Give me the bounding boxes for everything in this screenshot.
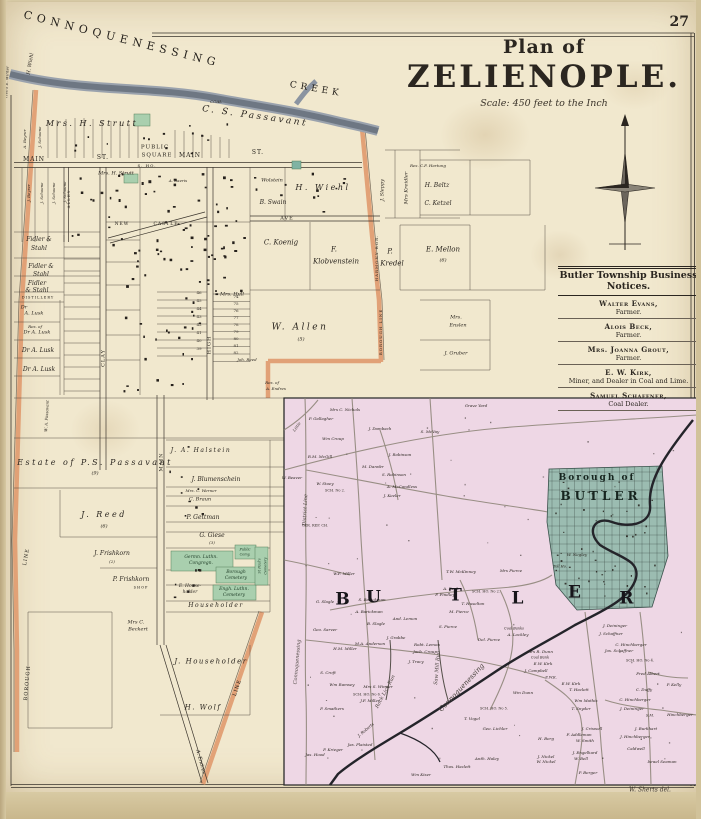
resident-label: Anth. Haley (475, 757, 499, 761)
resident-label: W. Nickel (536, 760, 555, 764)
resident-label: T. Hazlett (569, 688, 588, 692)
resident-label: Fred Albert (636, 672, 660, 676)
resident-label: A. Barickman (355, 610, 382, 614)
landowner-label: Dr A. Lusk (23, 367, 55, 373)
resident-label: GER. REF. CH. (302, 524, 328, 528)
resident-label: Wm Dunn (513, 691, 533, 695)
resident-label: M. Pierce (449, 610, 469, 614)
lot-number: 39 (196, 347, 201, 351)
resident-label: R.M. McGill (308, 455, 332, 459)
landowner-label: A. Beyrer (23, 129, 27, 148)
landowner-label: Mrs. H. Strutt (98, 172, 134, 177)
resident-label: Israel Seaman (647, 760, 676, 764)
resident-label: C. Hinchberger (619, 698, 650, 702)
landowner-label: J. A. Halstein (171, 448, 231, 454)
resident-label: SCH. No 2. (325, 489, 345, 493)
landowner-label: A. Endres (266, 387, 286, 391)
resident-label: J. Burkhart (635, 727, 657, 731)
resident-label: E.W.K. (545, 676, 557, 680)
landowner-label: Enslen (449, 324, 466, 329)
landowner-label: Cemy. (240, 553, 251, 557)
landowner-label: C. Braun (189, 498, 211, 503)
resident-label: Hinchberger (667, 713, 693, 717)
street-label: ST. (252, 150, 264, 156)
lot-number: 74 (233, 295, 238, 299)
resident-label: J. Tracy (408, 660, 423, 664)
page-margin-right (696, 0, 701, 819)
resident-label: M.A. Anderson (355, 642, 385, 646)
resident-label: Jos. Schaffner (605, 649, 633, 653)
resident-label: S. Croft (320, 671, 336, 675)
page-number: 27 (670, 14, 689, 30)
resident-label: And. Lemon (393, 617, 417, 621)
resident-label: P. Berger (579, 771, 597, 775)
landowner-label: J. Sleppy (381, 179, 386, 201)
landowner-label: Wolstein (261, 179, 283, 184)
resident-label: S. Pierce (439, 625, 457, 629)
resident-label: T. Huselton (462, 602, 485, 606)
landowner-label: C. Ketzel (424, 201, 451, 207)
township-letter: U (366, 590, 382, 607)
township-letter: R (619, 591, 634, 608)
business-role: Farmer. (558, 308, 699, 316)
resident-label: SCH. HO. No 2. (472, 590, 500, 594)
landowner-label: Estate of P.S. Passavant (17, 459, 173, 467)
lot-number: 82 (233, 351, 238, 355)
landowner-label: E. House- (179, 585, 201, 590)
street-label: ST. (97, 155, 109, 161)
resident-label: Coal Banks (504, 627, 524, 631)
landowner-label: Fidler & (26, 237, 52, 243)
landowner-label: J. Schoene (63, 181, 67, 202)
street-label: SQUARE (142, 153, 173, 159)
landowner-label: H. Wiehl (295, 184, 350, 192)
resident-label: E.W. Kirk (534, 662, 553, 666)
business-name: Mrs. Joanna Grout, (558, 345, 699, 354)
landowner-label: Cemetery (225, 577, 247, 582)
resident-label: H.M. Miller (333, 647, 357, 651)
landowner-label: (5) (297, 338, 304, 343)
landowner-label: Res. of (28, 325, 42, 329)
resident-label: Jas. Plaisted (348, 743, 373, 747)
resident-label: W. Smith (576, 739, 594, 743)
landowner-label: (3) (209, 541, 215, 545)
street-label: S. HO. (138, 164, 157, 168)
resident-label: Robt. Lemon (414, 643, 440, 647)
landowner-label: (2) (109, 560, 115, 564)
resident-label: W. Beaver (282, 476, 302, 480)
resident-label: Mrs R. Dunn (527, 650, 553, 654)
landowner-label: Mrs. C. Werner (186, 489, 217, 493)
resident-label: S.M. (646, 714, 654, 718)
township-letter: E (568, 585, 582, 602)
resident-label: Mrs Pierce (500, 569, 522, 573)
resident-label: Grave Yard (465, 404, 488, 408)
resident-label: W. Negley (567, 553, 587, 557)
street-label: AVE (280, 217, 294, 222)
landowner-label: Kredel (380, 261, 404, 268)
business-role: Farmer. (558, 354, 699, 362)
street-label: ALLEY (67, 190, 71, 209)
resident-label: J. Grabbe (387, 636, 406, 640)
street-label: CASTLE (153, 223, 178, 228)
township-letter: B (335, 592, 350, 609)
resident-label: Caldwell (627, 747, 645, 751)
resident-label: Wm Kiser (411, 773, 431, 777)
landowner-label: (6) (100, 525, 107, 530)
resident-label: P. Smathers (320, 707, 344, 711)
resident-label: J. Campbell (524, 669, 547, 673)
resident-label: J. Dambach (369, 427, 392, 431)
landowner-label: Public (239, 548, 250, 552)
landowner-label: P. Gettman (187, 515, 220, 521)
business-name: Samuel Schaffner, (558, 391, 699, 400)
landowner-label: P. (387, 249, 393, 256)
resident-label: P. Gallagher (309, 417, 333, 421)
street-label: PUBLIC (141, 145, 169, 151)
lot-number: 46 (196, 291, 201, 295)
resident-label: T.W. McKinney (446, 570, 476, 574)
lot-number: 41 (196, 331, 201, 335)
resident-label: A. McCandless (387, 485, 417, 489)
page-gutter-left (0, 0, 6, 819)
resident-label: C. Hinchberger (615, 643, 646, 647)
landowner-label: J. Beyrer (27, 184, 31, 202)
map-subtitle: Plan of (398, 36, 690, 58)
resident-label: F. Addleman (566, 733, 591, 737)
business-notice-entry: E. W. Kirk, Miner, and Dealer in Coal an… (558, 365, 699, 388)
landowner-label: COAL (210, 100, 222, 104)
landowner-label: Dr A. Lusk (22, 348, 54, 354)
resident-label: T. Snyder (571, 707, 590, 711)
resident-label: B. Slagle (367, 622, 385, 626)
landowner-label: P. Frishkorn (113, 577, 150, 583)
landowner-label: Fidler & (28, 264, 54, 270)
resident-label: Geo. Lichler (483, 727, 508, 731)
resident-label: H. Berg (538, 737, 554, 741)
landowner-label: Dr A. Lusk (24, 331, 51, 336)
map-title: ZELIENOPLE. (398, 59, 690, 95)
resident-label: Mrs S. Winner (363, 685, 392, 689)
landowner-label: Engh. Luthn. (219, 588, 249, 593)
resident-label: J. Deininger (620, 707, 644, 711)
landowner-label: Borough (226, 571, 246, 576)
landowner-label: Mrs C. (128, 621, 145, 626)
business-notice-entry: Mrs. Joanna Grout, Farmer. (558, 342, 699, 365)
compass-icon (595, 114, 655, 250)
lot-number: 77 (233, 316, 238, 320)
landowner-label: Mrs. Hull (220, 293, 244, 298)
landowner-label: J. Schoene (38, 126, 42, 147)
landowner-label: Mrs Kreidler (405, 172, 410, 205)
resident-label: J.F. Miller (360, 699, 379, 703)
resident-label: T. Vogel (464, 717, 480, 721)
landowner-label: Congregn. (189, 562, 213, 567)
resident-label: G. Slagle (316, 600, 334, 604)
resident-label: J. Deininger (603, 624, 627, 628)
business-notice-entry: Walter Evans, Farmer. (558, 296, 699, 319)
resident-label: Jacb. Croup (413, 650, 437, 654)
resident-label: S. McVay (421, 430, 440, 434)
landowner-label: J. Schoene (40, 182, 44, 203)
business-name: Walter Evans, (558, 299, 699, 308)
landowner-label: SHOP (134, 586, 149, 590)
resident-label: J. Keeler (383, 494, 400, 498)
township-letter: L (512, 591, 525, 608)
resident-label: SCH. HO. No 6. (353, 693, 381, 697)
landowner-label: Cemetery (223, 594, 245, 599)
landowner-label: & Stahl (25, 288, 48, 294)
business-notice-entry: Samuel Schaffner, Coal Dealer. (558, 388, 699, 411)
lot-number: 42 (196, 323, 201, 327)
landowner-label: Joh. Reed (237, 358, 256, 362)
landowner-label: H. Beltz (425, 183, 450, 189)
resident-label: P. Krieger (323, 748, 343, 752)
landowner-label: Stahl (31, 246, 47, 252)
lot-number: 44 (196, 307, 201, 311)
lot-number: 78 (233, 323, 238, 327)
landowner-label: Mrs. H. Strutt (46, 120, 138, 128)
business-notices-title: Butler Township Business Notices. (558, 266, 699, 296)
landowner-label: H. Wolf (185, 705, 222, 712)
resident-label: W. Bell (574, 757, 588, 761)
lot-number: 76 (233, 309, 238, 313)
resident-label: Mrs C. Nichols (330, 408, 360, 412)
street-label: MAIN (23, 157, 45, 163)
borough-butler-label: BUTLER (560, 489, 641, 503)
landowner-label: J. Blumenschein (192, 477, 241, 483)
landowner-label: G. Giese (199, 533, 224, 539)
resident-label: W. Stoey (316, 482, 333, 486)
resident-label: Wm Croup (322, 437, 344, 441)
resident-label: J. Criswell (582, 727, 603, 731)
landowner-label: Germn. Luthn. (184, 556, 217, 561)
landowner-label: C. Koenig (264, 240, 298, 247)
lot-number: 40 (196, 339, 201, 343)
resident-label: J. Hinchberger (620, 735, 650, 739)
resident-label: Wm Ramsey (329, 683, 354, 687)
resident-label: Thos. Hazlett (443, 765, 470, 769)
resident-label: S. Robinson (382, 473, 406, 477)
resident-label: M. Danner (362, 465, 384, 469)
landowner-label: A. Baeris (169, 179, 187, 183)
township-letter: T (449, 588, 463, 605)
resident-label: Geo. Sarver (313, 628, 337, 632)
borough-of-label: Borough of (559, 473, 636, 483)
landowner-label: holder (183, 591, 198, 596)
landowner-label: J. Gruber (445, 352, 468, 357)
title-block: Plan of ZELIENOPLE. Scale: 450 feet to t… (398, 36, 690, 109)
business-role: Miner, and Dealer in Coal and Lime. (558, 377, 699, 385)
landowner-label: Beckert (128, 628, 148, 633)
landowner-label: A. Lusk (25, 312, 44, 317)
business-notice-entry: Alois Beck, Farmer. (558, 319, 699, 342)
page-margin-bottom (0, 792, 701, 819)
street-label: MAIN (179, 153, 201, 159)
landowner-label: F. (331, 247, 337, 254)
business-notices: Butler Township Business Notices. Walter… (558, 266, 699, 411)
street-label: NEW (115, 223, 130, 228)
map-scale: Scale: 450 feet to the Inch (398, 98, 690, 109)
lot-number: 80 (233, 337, 238, 341)
boundary-label: BOROUGH LINE (379, 309, 383, 356)
landowner-label: (9) (91, 472, 98, 477)
resident-label: J. Schaffner (599, 632, 622, 636)
business-name: Alois Beck, (558, 322, 699, 331)
business-name: E. W. Kirk, (558, 368, 699, 377)
resident-label: J. Engelhard (573, 751, 598, 755)
lot-number: 79 (233, 330, 238, 334)
landowner-label: J. Householder (174, 659, 247, 666)
landowner-label: DISTILLERY (22, 296, 54, 300)
resident-label: E.W. Kirk (562, 682, 581, 686)
landowner-label: J. Frishkorn (94, 551, 130, 557)
landowner-label: B. Swain (260, 200, 287, 206)
resident-label: Wm Mathis (574, 699, 597, 703)
landowner-label: Stahl (33, 272, 49, 278)
resident-label: Toll Ho. (553, 565, 567, 569)
boundary-label: HARMONY BOR. (375, 235, 379, 282)
lot-number: 43 (196, 315, 201, 319)
landowner-label: Klobvenstein (313, 259, 359, 266)
landowner-label: E. Mellon (426, 247, 460, 254)
business-role: Coal Dealer. (558, 400, 699, 408)
landowner-label: J. Schoene (52, 182, 56, 203)
street-label: HIGH (208, 336, 213, 355)
landowner-label: Res. C.F. Hartung (410, 164, 446, 168)
lot-number: 75 (233, 302, 238, 306)
landowner-label: Mrs. (450, 316, 462, 321)
landowner-label: Householder (188, 603, 244, 609)
resident-label: SCH. HO. No 5. (480, 707, 508, 711)
landowner-label: St Paul's (258, 558, 262, 573)
landowner-label: J. Reed (81, 511, 127, 519)
resident-label: A. Lockley (507, 633, 528, 637)
landowner-label: Cemetery (264, 557, 268, 574)
landowner-label: W. Allen (272, 324, 329, 333)
street-label: CLAY (102, 349, 107, 367)
business-role: Farmer. (558, 331, 699, 339)
resident-label: SCH. HO. No 4. (626, 659, 654, 663)
resident-label: C. Duffy (636, 688, 652, 692)
lot-number: 45 (196, 299, 201, 303)
resident-label: P. Kelly (667, 683, 682, 687)
atlas-page: CONNOQUENESSINGCREEK MAINST.PUBLICSQUARE… (0, 0, 701, 819)
resident-label: J. Robinson (389, 453, 412, 457)
landowner-label: Res. of (265, 381, 279, 385)
resident-label: Coal Bank (531, 656, 549, 660)
lot-number: 81 (233, 344, 238, 348)
resident-label: W.F. Miller (333, 572, 355, 576)
resident-label: Jas. Hood (305, 753, 324, 757)
resident-label: Del. Pierce (478, 638, 500, 642)
landowner-label: (6) (439, 259, 446, 264)
